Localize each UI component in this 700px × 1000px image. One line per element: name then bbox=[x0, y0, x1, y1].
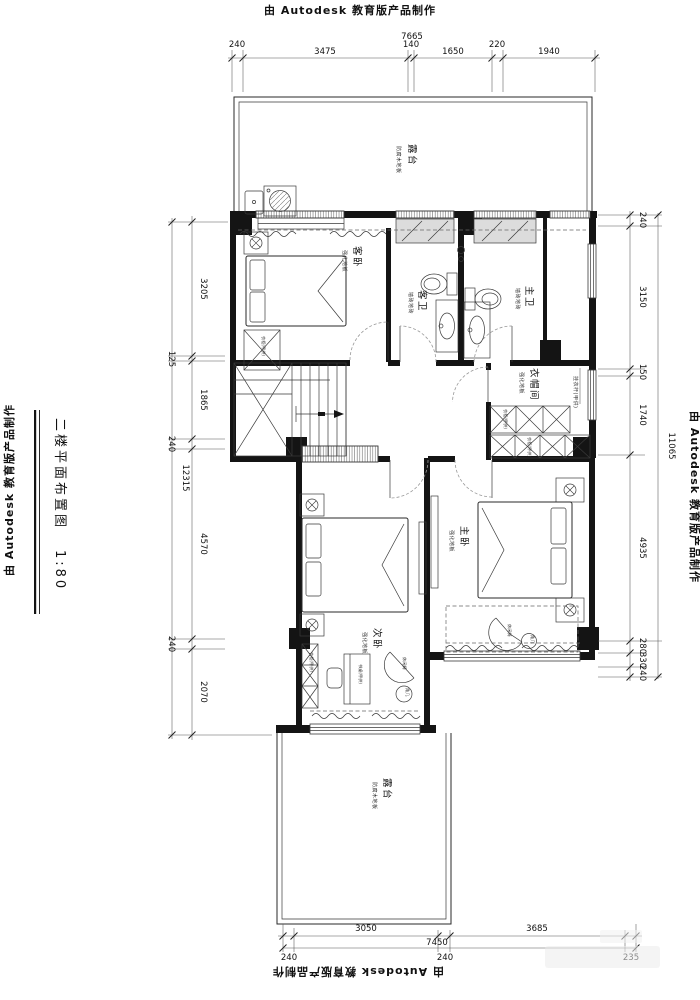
callout-wardrobe-cloakroom-1: 衣柜(甲供) bbox=[502, 409, 509, 429]
guest-bath-fixtures bbox=[421, 273, 458, 352]
dim-bottom-1: 3685 bbox=[526, 924, 548, 934]
dim-right-1: 3150 bbox=[637, 286, 647, 308]
terrace-bottom-outline bbox=[277, 733, 451, 924]
dim-top-3: 1650 bbox=[442, 47, 464, 57]
title-block: 二楼平面布置图 1:80 bbox=[34, 410, 67, 614]
dim-bottom-edge-0: 240 bbox=[281, 953, 297, 963]
room-finish-terrace-bottom: 防腐木地板 bbox=[371, 782, 378, 810]
autodesk-banner-left: 由 Autodesk 教育版产品制作 bbox=[2, 404, 16, 576]
dim-right-overall: 11065 bbox=[666, 432, 676, 459]
room-finish-guest-bedroom: 强化地板 bbox=[341, 250, 348, 272]
room-finish-master-bath: 墙砖地砖 bbox=[514, 288, 521, 310]
callout-desk: 书桌(甲供) bbox=[357, 664, 364, 684]
dim-right-4: 4935 bbox=[637, 537, 647, 559]
room-label-terrace-bottom: 露台 bbox=[381, 778, 393, 800]
dim-left-3: 240 bbox=[166, 436, 176, 452]
dim-right-2: 150 bbox=[637, 364, 647, 380]
room-label-cloakroom: 衣帽间 bbox=[528, 368, 540, 401]
guest-bedroom-furniture bbox=[244, 232, 346, 370]
drawing-title: 二楼平面布置图 bbox=[52, 418, 67, 530]
dim-top-2: 140 bbox=[403, 40, 419, 50]
room-finish-guest-bath: 墙砖地砖 bbox=[407, 292, 414, 314]
room-finish-master-bedroom: 强化地板 bbox=[448, 530, 455, 552]
drawing-scale: 1:80 bbox=[52, 550, 67, 591]
dim-top-0: 240 bbox=[229, 40, 245, 50]
autodesk-banner-top: 由 Autodesk 教育版产品制作 bbox=[264, 3, 436, 17]
callout-wardrobe-second: 衣柜(甲供) bbox=[308, 652, 315, 672]
dim-left-0: 3205 bbox=[198, 278, 208, 300]
terrace-sink bbox=[245, 191, 263, 214]
dim-right-3: 1740 bbox=[637, 404, 647, 426]
dim-top-4: 220 bbox=[489, 40, 505, 50]
dimension-chain-top: 7665 240 3475 140 1650 220 1940 bbox=[228, 32, 600, 92]
callout-side-table-second: 角几 bbox=[404, 688, 411, 697]
autodesk-banner-bottom: 由 Autodesk 教育版产品制作 bbox=[272, 965, 444, 979]
master-bath-fixtures bbox=[458, 247, 502, 359]
room-finish-second-bedroom: 强化地板 bbox=[361, 632, 368, 654]
callout-wardrobe-guest: 衣柜(甲供) bbox=[260, 336, 267, 356]
room-label-master-bedroom: 主卧 bbox=[458, 526, 470, 548]
watermark bbox=[545, 930, 660, 968]
room-label-guest-bath: 客卫 bbox=[416, 290, 428, 312]
room-label-guest-bedroom: 客卧 bbox=[351, 246, 363, 268]
room-labels: 露台 防腐木地板 客卧 强化地板 客卫 墙砖地砖 主卫 墙砖地砖 衣帽间 强化地… bbox=[341, 144, 540, 810]
dim-left-6: 2070 bbox=[198, 681, 208, 703]
stair-direction-arrow bbox=[334, 410, 344, 418]
dim-top-1: 3475 bbox=[314, 47, 336, 57]
room-finish-terrace-top: 防腐木地板 bbox=[395, 146, 402, 174]
room-finish-cloakroom: 强化地板 bbox=[518, 372, 525, 394]
dim-left-5: 240 bbox=[166, 636, 176, 652]
dimension-chain-left: 3205 125 1865 240 4570 240 2070 12315 bbox=[166, 216, 272, 740]
callout-wardrobe-cloakroom-2: 衣柜(甲供) bbox=[526, 437, 533, 457]
callout-lounge-chair-master: 休闲椅 bbox=[506, 624, 513, 637]
autodesk-banner-right: 由 Autodesk 教育版产品制作 bbox=[688, 411, 700, 583]
room-label-second-bedroom: 次卧 bbox=[371, 628, 383, 650]
floor-plan-sheet: 由 Autodesk 教育版产品制作 由 Autodesk 教育版产品制作 由 … bbox=[0, 0, 700, 1000]
floor-plan-drawing: 由 Autodesk 教育版产品制作 由 Autodesk 教育版产品制作 由 … bbox=[0, 0, 700, 1000]
callout-side-table-master: 角几 bbox=[529, 635, 536, 644]
dim-left-2: 1865 bbox=[198, 389, 208, 411]
dim-bottom-edge-1: 240 bbox=[437, 953, 453, 963]
room-label-master-bath: 主卫 bbox=[523, 286, 535, 308]
dim-left-4: 4570 bbox=[198, 533, 208, 555]
dim-left-overall: 12315 bbox=[180, 464, 190, 491]
dimension-chain-right: 240 3150 150 1740 4935 280 330 240 11065 bbox=[598, 211, 676, 681]
dim-bottom-overall: 7450 bbox=[426, 938, 448, 948]
dim-top-5: 1940 bbox=[538, 47, 560, 57]
dim-right-7: 240 bbox=[637, 665, 647, 681]
dim-left-1: 125 bbox=[166, 351, 176, 367]
dim-right-0: 240 bbox=[637, 212, 647, 228]
dim-bottom-0: 3050 bbox=[355, 924, 377, 934]
callout-coat-rod: 挂衣杆(甲供) bbox=[572, 376, 579, 408]
room-label-terrace-top: 露台 bbox=[406, 144, 418, 166]
callout-lounge-chair-second: 休闲椅 bbox=[401, 657, 408, 670]
